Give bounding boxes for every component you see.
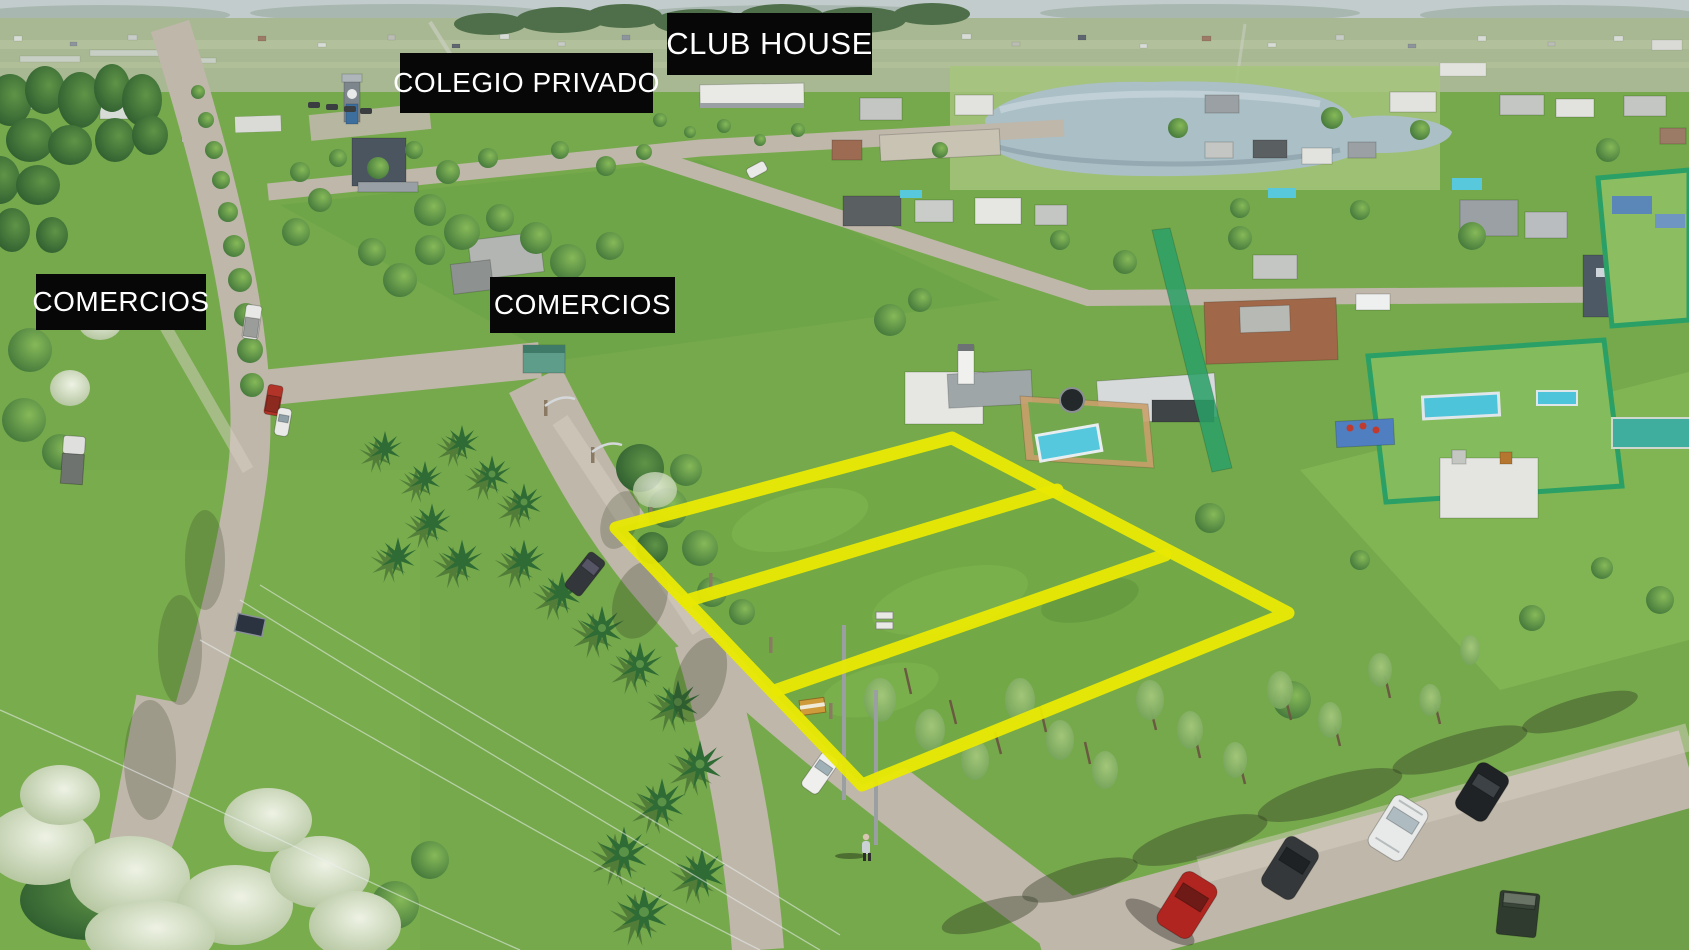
aerial-photo: CLUB HOUSE COLEGIO PRIVADO COMERCIOS COM… xyxy=(0,0,1689,950)
label-comercios-center: COMERCIOS xyxy=(490,277,675,333)
lot-boundaries-overlay xyxy=(0,0,1689,950)
label-colegio-privado: COLEGIO PRIVADO xyxy=(400,53,653,113)
lot-divider xyxy=(777,555,1165,690)
lot-divider xyxy=(686,490,1057,601)
label-club-house: CLUB HOUSE xyxy=(667,13,872,75)
label-comercios-left: COMERCIOS xyxy=(36,274,206,330)
lot-outline xyxy=(616,438,1288,785)
